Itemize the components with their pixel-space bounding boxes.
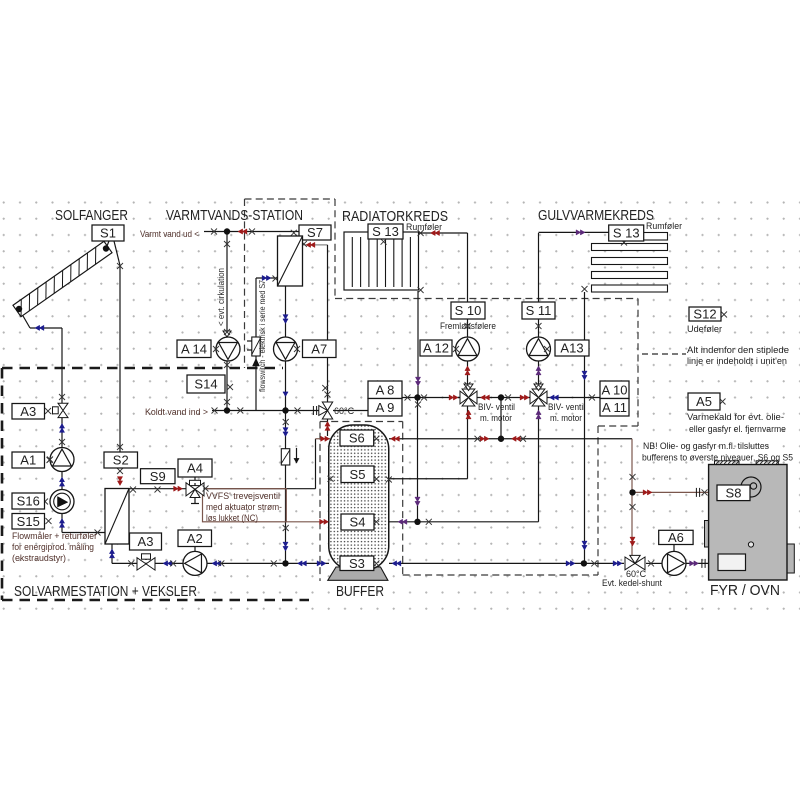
svg-text:med aktuator strøm-: med aktuator strøm-	[206, 502, 282, 512]
svg-text:S15: S15	[17, 514, 40, 529]
svg-text:A 8: A 8	[376, 382, 395, 397]
svg-text:Rumføler: Rumføler	[406, 222, 442, 232]
svg-text:60°C: 60°C	[334, 406, 355, 416]
svg-text:for energiprod. måling: for energiprod. måling	[12, 542, 94, 552]
svg-text:VARMTVANDS-STATION: VARMTVANDS-STATION	[166, 207, 303, 224]
svg-text:Koldt vand ind >: Koldt vand ind >	[145, 407, 208, 417]
svg-text:VVFS' trevejsventil: VVFS' trevejsventil	[206, 491, 280, 501]
svg-text:S1: S1	[100, 226, 116, 241]
svg-text:S2: S2	[113, 453, 129, 468]
svg-text:(ekstraudstyr): (ekstraudstyr)	[12, 553, 66, 563]
svg-text:løs lukket (NC): løs lukket (NC)	[206, 513, 258, 523]
svg-text:S5: S5	[350, 467, 366, 482]
svg-text:A7: A7	[311, 341, 327, 356]
svg-text:A 10: A 10	[601, 382, 627, 397]
svg-text:Varmt vand ud <: Varmt vand ud <	[140, 229, 199, 239]
svg-text:NB! Olie- og gasfyr m.fl. tils: NB! Olie- og gasfyr m.fl. tilsluttes	[643, 441, 769, 451]
svg-text:Udeføler: Udeføler	[687, 324, 722, 334]
svg-text:SOLVARMESTATION + VEKSLER: SOLVARMESTATION + VEKSLER	[14, 583, 197, 600]
svg-text:A 14: A 14	[181, 341, 207, 356]
svg-text:S3: S3	[349, 556, 365, 571]
svg-text:S 13: S 13	[613, 226, 640, 241]
svg-text:< evt. cirkulation: < evt. cirkulation	[216, 268, 226, 326]
svg-text:SOLFANGER: SOLFANGER	[55, 207, 128, 224]
svg-text:S8: S8	[726, 485, 742, 500]
svg-text:A5: A5	[696, 394, 712, 409]
svg-text:S6: S6	[349, 431, 365, 446]
svg-text:Flowmåler + returføler: Flowmåler + returføler	[12, 531, 97, 541]
svg-text:BIV- ventil: BIV- ventil	[478, 402, 515, 412]
svg-text:A4: A4	[187, 461, 203, 476]
svg-text:A 9: A 9	[376, 400, 395, 415]
svg-text:S 10: S 10	[455, 303, 482, 318]
svg-text:m. motor: m. motor	[480, 413, 512, 423]
svg-text:A13: A13	[560, 341, 583, 356]
svg-text:linje er indeholdt i unit'en: linje er indeholdt i unit'en	[687, 356, 787, 366]
svg-text:BIV- ventil: BIV- ventil	[548, 402, 585, 412]
svg-text:flowswitch - elektrisk i serie: flowswitch - elektrisk i serie med S7	[257, 280, 267, 392]
svg-text:A3: A3	[138, 534, 154, 549]
svg-text:S16: S16	[17, 494, 40, 509]
svg-text:Evt. kedel-shunt: Evt. kedel-shunt	[602, 578, 662, 588]
svg-text:S14: S14	[194, 377, 217, 392]
svg-text:A3: A3	[20, 404, 36, 419]
svg-text:GULVVARMEKREDS: GULVVARMEKREDS	[538, 207, 654, 224]
svg-text:eller gasfyr el. fjernvarme: eller gasfyr el. fjernvarme	[689, 424, 786, 434]
svg-text:S12: S12	[693, 307, 716, 322]
svg-text:A 11: A 11	[602, 400, 627, 415]
svg-text:BUFFER: BUFFER	[336, 583, 384, 600]
svg-text:Fremløbsfølere: Fremløbsfølere	[440, 321, 496, 331]
svg-text:Rumføler: Rumføler	[646, 221, 682, 231]
svg-text:Varmekald for evt. olie-: Varmekald for evt. olie-	[687, 412, 784, 422]
svg-text:Alt indenfor den stiplede: Alt indenfor den stiplede	[687, 345, 789, 355]
svg-text:FYR / OVN: FYR / OVN	[710, 582, 780, 599]
svg-text:A1: A1	[20, 453, 36, 468]
svg-text:S9: S9	[150, 469, 166, 484]
svg-text:S 13: S 13	[372, 224, 399, 239]
svg-text:S4: S4	[350, 515, 366, 530]
svg-text:A 12: A 12	[423, 341, 449, 356]
svg-text:m. motor: m. motor	[550, 413, 582, 423]
svg-text:A2: A2	[187, 531, 203, 546]
svg-text:bufferens to øverste niveauer,: bufferens to øverste niveauer, S6 og S5	[642, 453, 793, 463]
svg-text:S 11: S 11	[526, 303, 552, 318]
svg-text:S7: S7	[307, 225, 323, 240]
svg-text:A6: A6	[668, 530, 684, 545]
